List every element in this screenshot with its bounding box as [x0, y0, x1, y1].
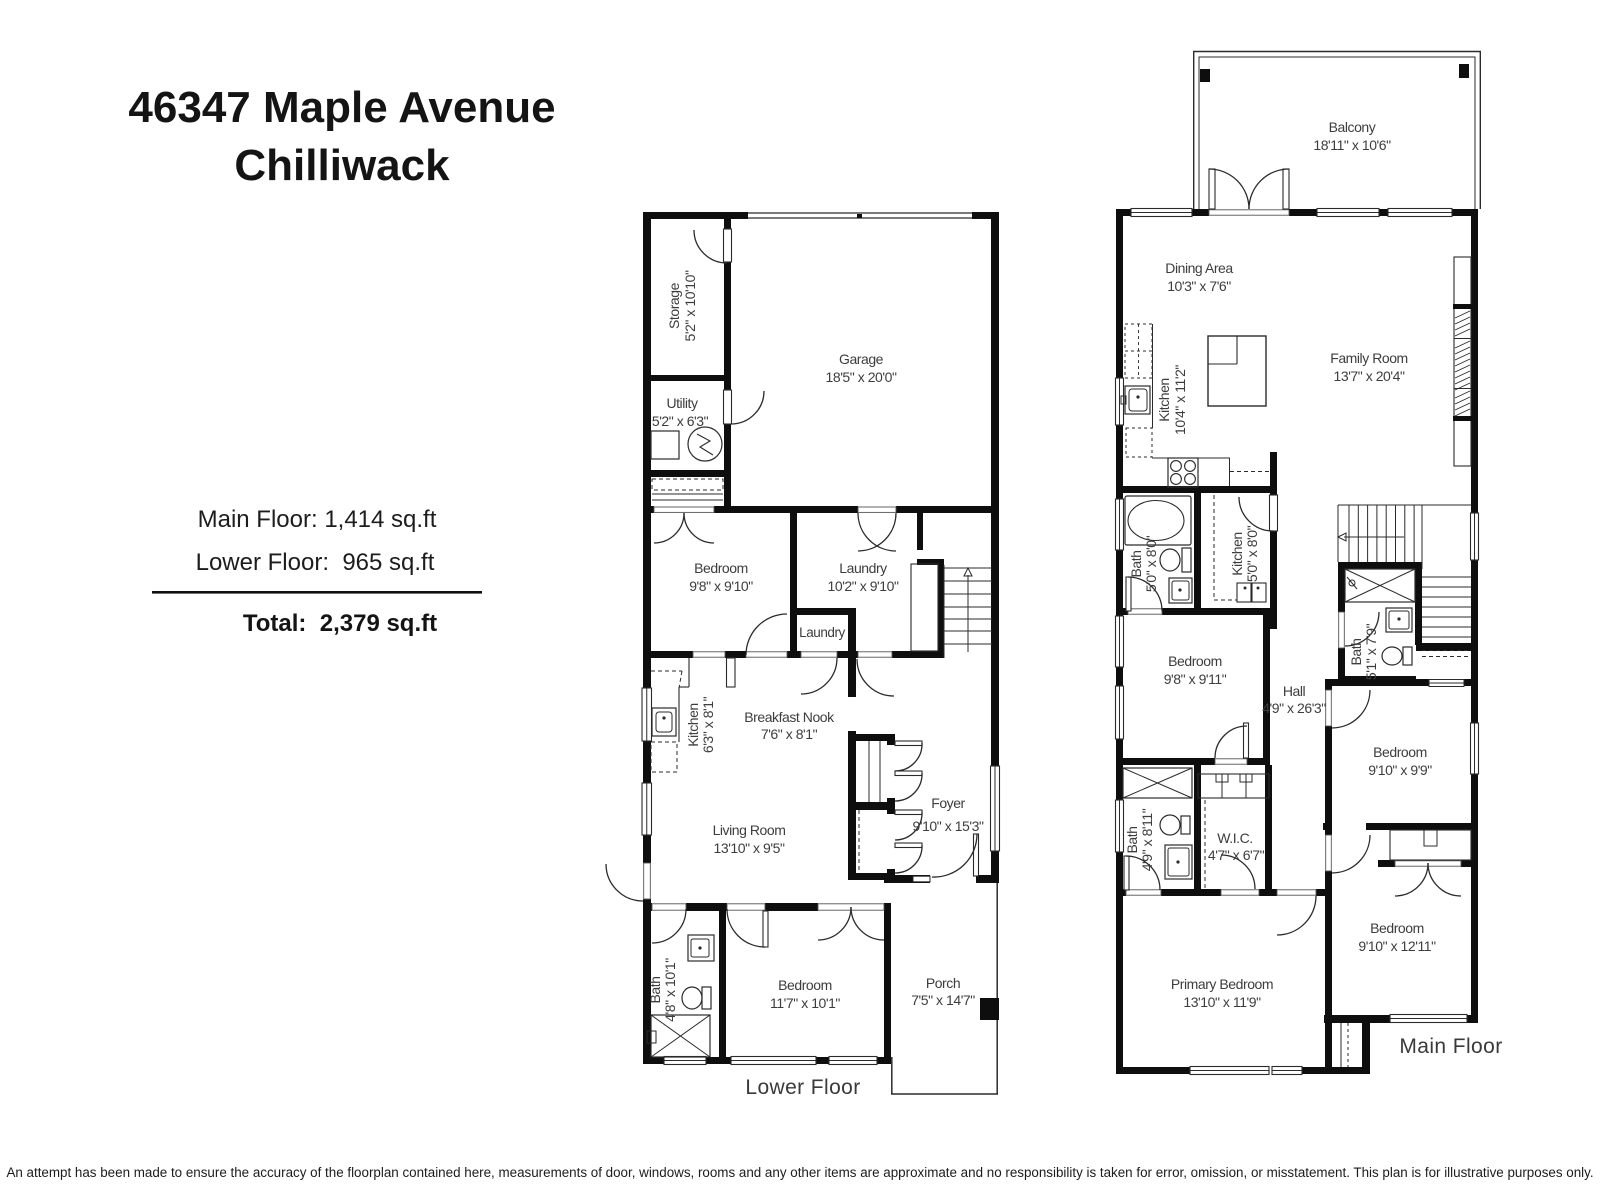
svg-text:4'9" x 26'3": 4'9" x 26'3" [1262, 700, 1326, 716]
svg-text:9'10" x 9'9": 9'10" x 9'9" [1368, 762, 1432, 778]
svg-text:Bedroom: Bedroom [1168, 653, 1222, 669]
svg-text:13'7" x 20'4": 13'7" x 20'4" [1334, 368, 1405, 384]
svg-text:5'2" x 10'10": 5'2" x 10'10" [682, 270, 698, 341]
svg-text:5'2" x 6'3": 5'2" x 6'3" [652, 413, 709, 429]
svg-text:Storage: Storage [666, 282, 682, 329]
svg-text:11'7" x 10'1": 11'7" x 10'1" [770, 995, 840, 1011]
svg-text:W.I.C.: W.I.C. [1217, 830, 1252, 846]
svg-text:Laundry: Laundry [839, 560, 887, 576]
svg-text:18'5" x 20'0": 18'5" x 20'0" [826, 369, 897, 385]
svg-text:9'10" x 12'11": 9'10" x 12'11" [1358, 938, 1436, 954]
svg-text:An attempt has been made to en: An attempt has been made to ensure the a… [6, 1165, 1593, 1180]
svg-text:4'7" x 6'7": 4'7" x 6'7" [1208, 847, 1265, 863]
svg-text:9'8" x 9'11": 9'8" x 9'11" [1164, 671, 1227, 687]
svg-text:Garage: Garage [839, 351, 884, 367]
svg-text:Porch: Porch [926, 975, 960, 991]
svg-text:Chilliwack: Chilliwack [234, 141, 450, 190]
svg-text:Foyer: Foyer [931, 795, 965, 811]
svg-text:Bath: Bath [647, 977, 663, 1004]
svg-text:Dining Area: Dining Area [1165, 260, 1233, 276]
svg-text:Main Floor: 1,414 sq.ft: Main Floor: 1,414 sq.ft [198, 506, 437, 533]
svg-text:Bedroom: Bedroom [778, 977, 832, 993]
svg-text:Hall: Hall [1283, 683, 1306, 699]
svg-text:Laundry: Laundry [799, 625, 845, 640]
svg-text:46347 Maple Avenue: 46347 Maple Avenue [128, 83, 555, 132]
svg-text:Balcony: Balcony [1329, 119, 1376, 135]
svg-text:5'0" x 8'0": 5'0" x 8'0" [1244, 525, 1260, 582]
svg-text:Kitchen: Kitchen [1229, 532, 1245, 576]
svg-text:Utility: Utility [666, 395, 698, 411]
svg-text:Bedroom: Bedroom [694, 560, 748, 576]
svg-text:Bedroom: Bedroom [1370, 920, 1424, 936]
svg-text:Bedroom: Bedroom [1373, 744, 1427, 760]
svg-text:7'6" x 8'1": 7'6" x 8'1" [761, 726, 818, 742]
svg-text:5'1" x 7'9": 5'1" x 7'9" [1363, 623, 1379, 680]
svg-text:5'0" x 8'0": 5'0" x 8'0" [1143, 535, 1159, 592]
svg-text:Kitchen: Kitchen [1156, 378, 1172, 422]
svg-text:Bath: Bath [1348, 639, 1364, 666]
svg-text:Lower Floor: 965 sq.ft: Lower Floor: 965 sq.ft [196, 549, 435, 576]
svg-text:9'8" x 9'10": 9'8" x 9'10" [689, 578, 753, 594]
svg-text:Living Room: Living Room [713, 822, 786, 838]
svg-text:4'8" x 10'1": 4'8" x 10'1" [662, 958, 678, 1022]
svg-text:Primary Bedroom: Primary Bedroom [1171, 976, 1273, 992]
svg-text:4'9" x 8'11": 4'9" x 8'11" [1139, 808, 1155, 871]
svg-text:18'11" x 10'6": 18'11" x 10'6" [1313, 137, 1391, 153]
svg-text:Kitchen: Kitchen [685, 703, 701, 747]
svg-text:9'10" x 15'3": 9'10" x 15'3" [913, 818, 984, 834]
svg-text:Total: 2,379 sq.ft: Total: 2,379 sq.ft [243, 610, 437, 637]
svg-text:13'10" x 9'5": 13'10" x 9'5" [714, 840, 785, 856]
svg-text:Lower Floor: Lower Floor [745, 1076, 860, 1099]
svg-text:6'3" x 8'1": 6'3" x 8'1" [700, 696, 716, 753]
svg-text:Main Floor: Main Floor [1399, 1035, 1502, 1058]
svg-text:10'4" x 11'2": 10'4" x 11'2" [1172, 365, 1188, 435]
svg-text:7'5" x 14'7": 7'5" x 14'7" [911, 992, 975, 1008]
svg-text:10'2" x 9'10": 10'2" x 9'10" [828, 578, 899, 594]
svg-text:10'3" x 7'6": 10'3" x 7'6" [1167, 278, 1231, 294]
svg-text:13'10" x 11'9": 13'10" x 11'9" [1183, 994, 1261, 1010]
svg-text:Bath: Bath [1128, 551, 1144, 578]
svg-text:Breakfast Nook: Breakfast Nook [744, 709, 835, 725]
svg-text:Family Room: Family Room [1330, 350, 1408, 366]
svg-text:Bath: Bath [1124, 827, 1140, 854]
